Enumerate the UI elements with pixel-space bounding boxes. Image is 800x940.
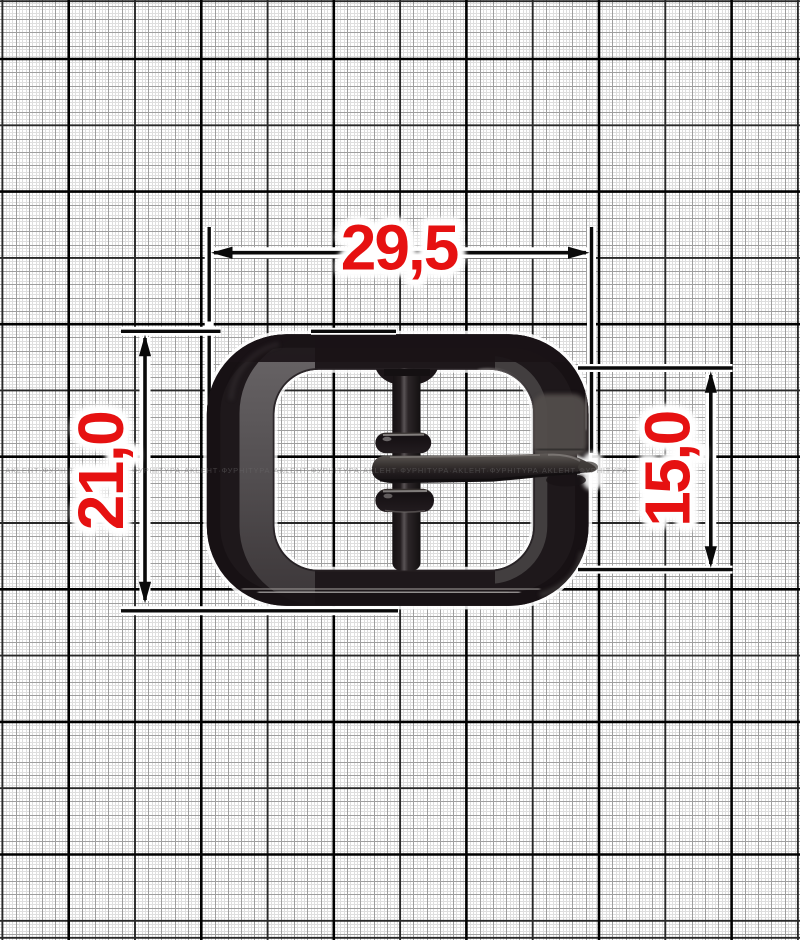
svg-text:29,5: 29,5 xyxy=(341,212,458,284)
svg-text:21,0: 21,0 xyxy=(65,412,137,531)
svg-text:15,0: 15,0 xyxy=(632,412,704,527)
